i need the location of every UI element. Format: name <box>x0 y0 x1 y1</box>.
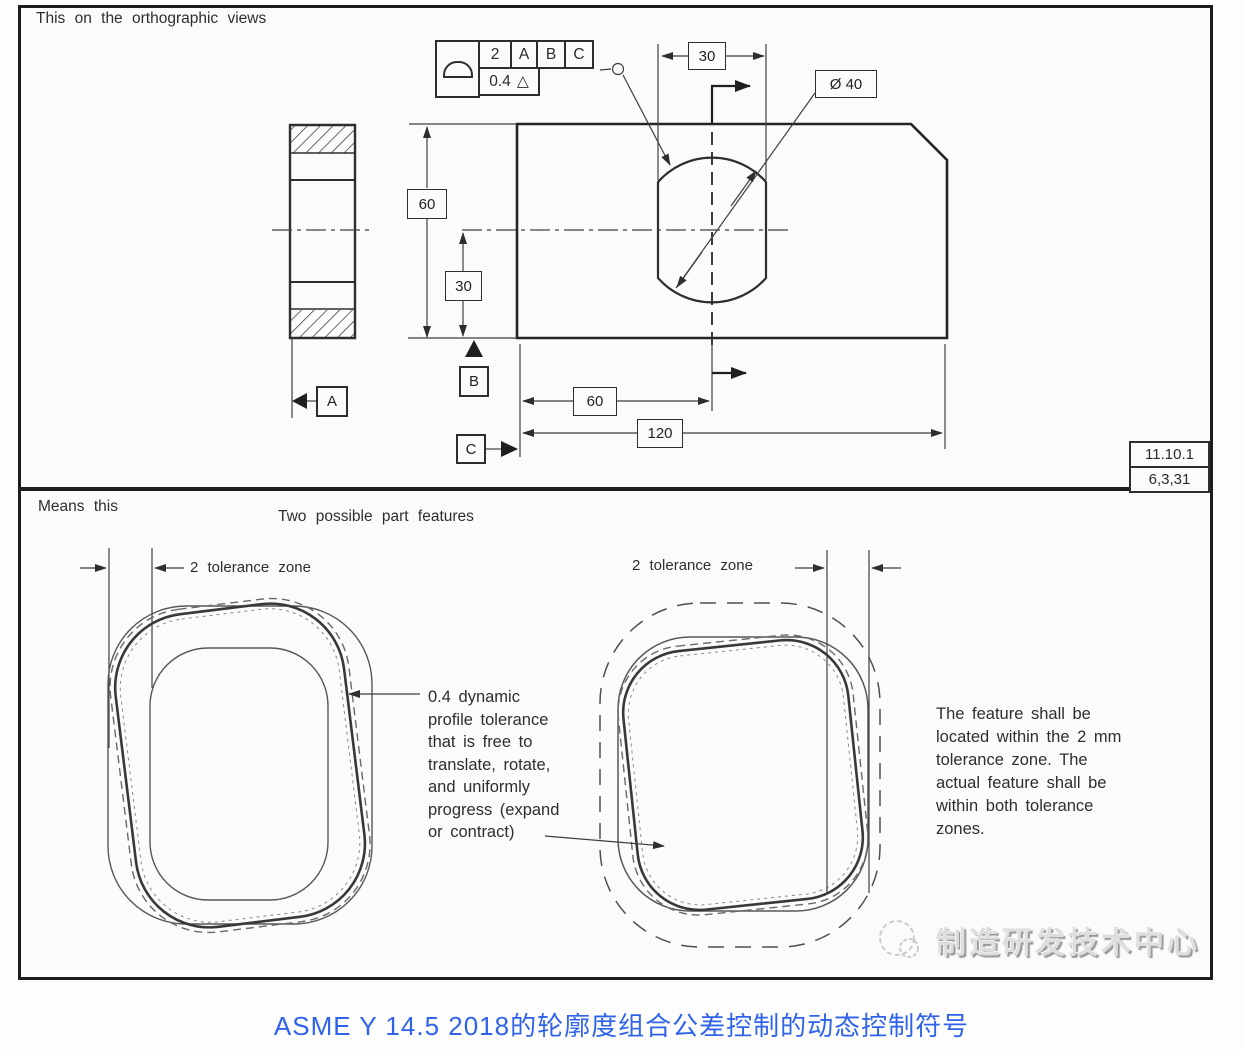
feature-control-frame: 2 A B C 0.4 △ <box>435 40 594 98</box>
fcf-lower-tolerance: 0.4 <box>489 73 511 91</box>
reference-box: 11.10.1 6,3,31 <box>1129 441 1210 493</box>
reference-line-2: 6,3,31 <box>1129 466 1210 493</box>
dim-height-60: 60 <box>407 189 447 219</box>
left-zone-label: 2 tolerance zone <box>190 559 311 576</box>
fcf-datum-b-cell: B <box>536 40 566 69</box>
panel-divider <box>18 487 1213 491</box>
fcf-datum-c-cell: C <box>564 40 594 69</box>
dim-location-60: 60 <box>573 387 617 416</box>
fcf-tolerance-cell: 2 <box>478 40 512 69</box>
dim-total-120: 120 <box>637 419 683 448</box>
two-possible-title: Two possible part features <box>278 508 474 526</box>
watermark-text: 制造研发技术中心 <box>936 918 1200 962</box>
dynamic-profile-triangle-icon: △ <box>517 72 529 91</box>
means-this-title: Means this <box>38 498 118 516</box>
right-zone-label: 2 tolerance zone <box>632 557 753 574</box>
figure-caption: ASME Y 14.5 2018的轮廓度组合公差控制的动态控制符号 <box>0 1006 1243 1043</box>
figure-canvas: This on the orthographic views 2 A B C 0… <box>0 0 1243 1050</box>
dim-offset-30: 30 <box>445 271 482 301</box>
profile-of-surface-icon <box>435 40 480 98</box>
dynamic-profile-note: 0.4 dynamic profile tolerance that is fr… <box>428 686 559 844</box>
fcf-datum-a-cell: A <box>510 40 538 69</box>
datum-c-label: C <box>456 434 486 464</box>
fcf-dynamic-cell: 0.4 △ <box>478 67 540 96</box>
reference-line-1: 11.10.1 <box>1129 441 1210 468</box>
datum-b-label: B <box>459 366 489 397</box>
datum-a-label: A <box>316 386 348 417</box>
dim-width-30: 30 <box>688 42 726 70</box>
top-panel-title: This on the orthographic views <box>36 10 266 28</box>
dim-diameter-40: Ø 40 <box>815 70 877 98</box>
feature-location-note: The feature shall be located within the … <box>936 703 1121 841</box>
